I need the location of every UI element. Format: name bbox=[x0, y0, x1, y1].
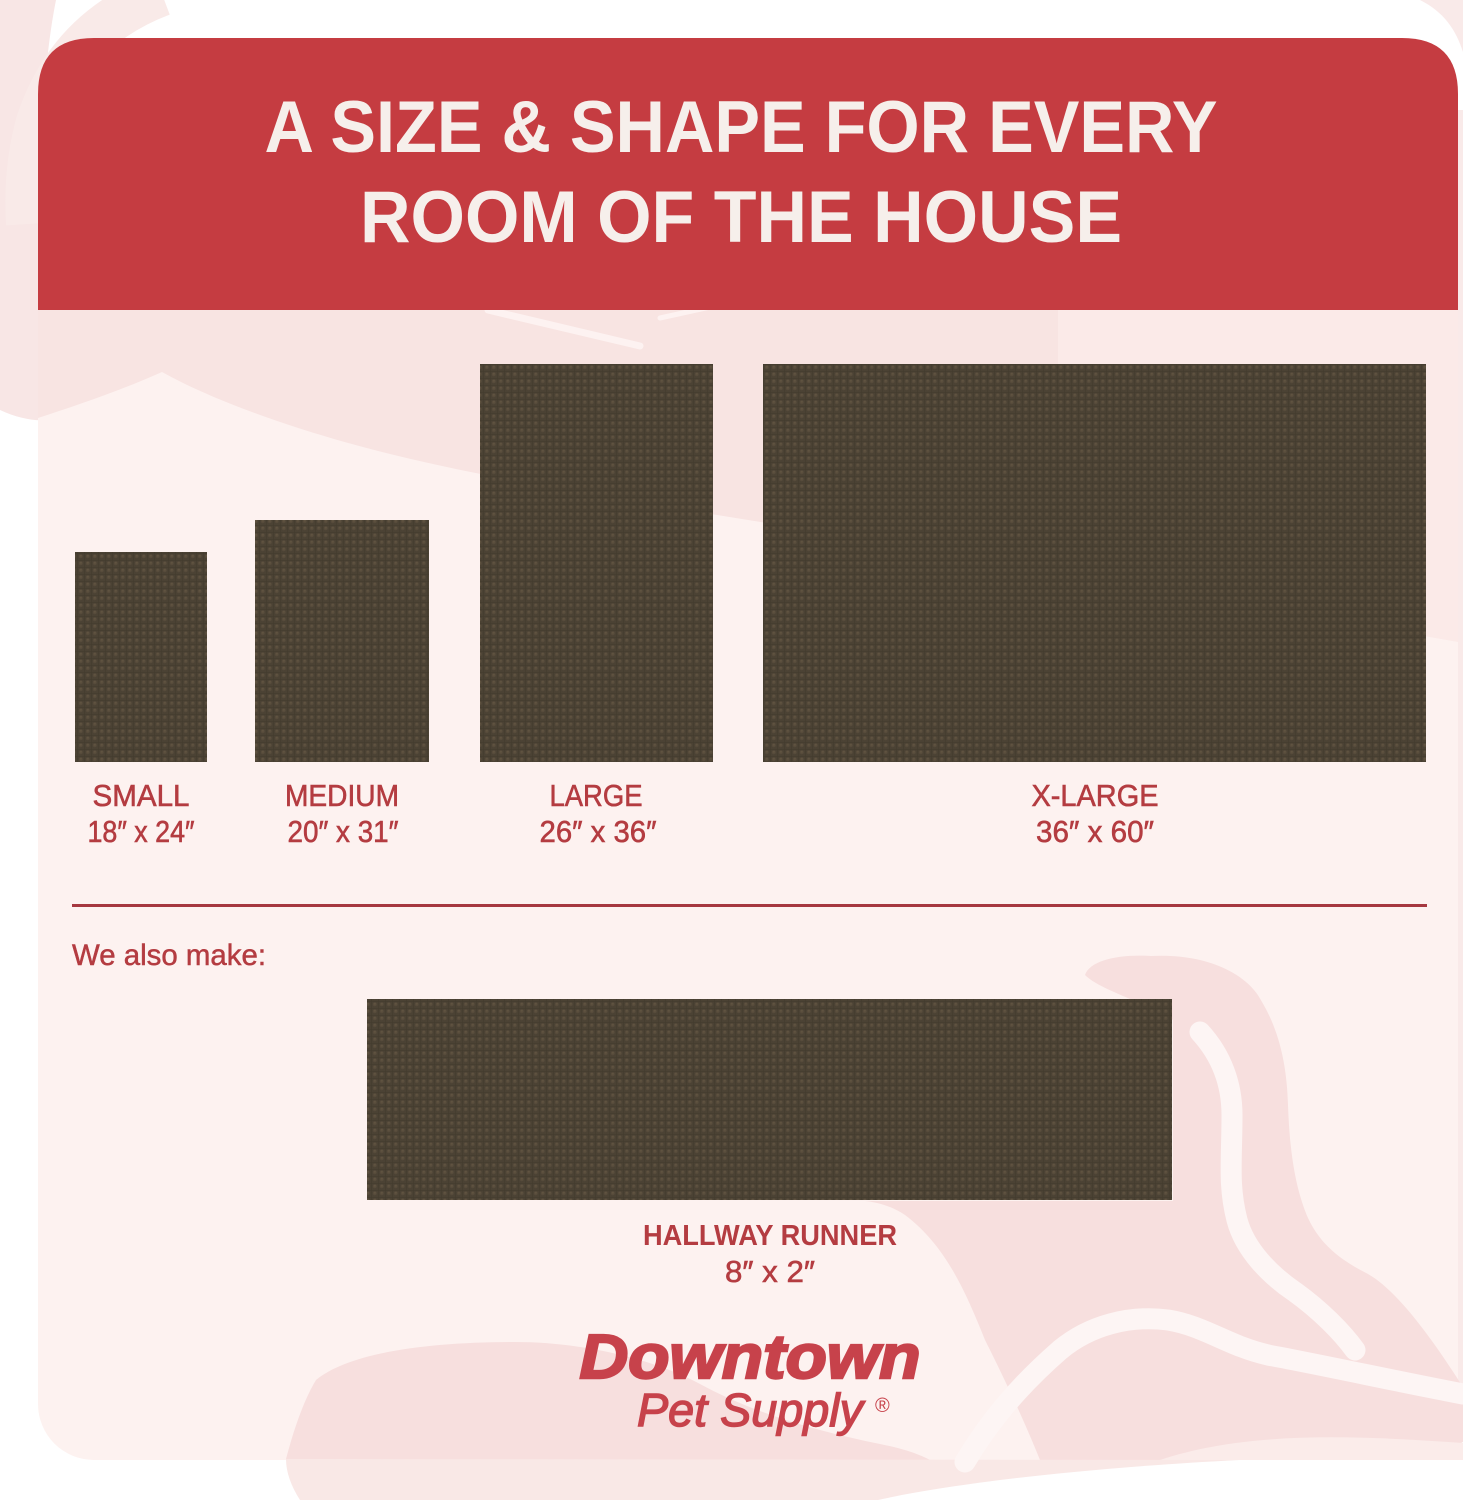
svg-text:®: ® bbox=[875, 1395, 890, 1417]
svg-text:MEDIUM: MEDIUM bbox=[285, 778, 399, 813]
svg-text:36″ x 60″: 36″ x 60″ bbox=[1036, 814, 1154, 849]
svg-text:A SIZE & SHAPE FOR EVERY: A SIZE & SHAPE FOR EVERY bbox=[265, 87, 1218, 168]
svg-text:We also make:: We also make: bbox=[72, 939, 266, 972]
svg-text:X-LARGE: X-LARGE bbox=[1032, 778, 1159, 813]
svg-text:SMALL: SMALL bbox=[93, 778, 190, 813]
svg-text:Downtown: Downtown bbox=[580, 1323, 921, 1392]
svg-text:Pet Supply: Pet Supply bbox=[637, 1384, 866, 1436]
svg-text:26″ x 36″: 26″ x 36″ bbox=[540, 814, 657, 849]
svg-text:8″ x 2″: 8″ x 2″ bbox=[725, 1254, 815, 1289]
svg-text:18″ x 24″: 18″ x 24″ bbox=[88, 814, 195, 849]
svg-text:HALLWAY RUNNER: HALLWAY RUNNER bbox=[643, 1220, 897, 1252]
svg-text:LARGE: LARGE bbox=[550, 778, 643, 813]
svg-text:ROOM OF THE HOUSE: ROOM OF THE HOUSE bbox=[360, 177, 1122, 258]
svg-text:20″ x 31″: 20″ x 31″ bbox=[288, 814, 399, 849]
